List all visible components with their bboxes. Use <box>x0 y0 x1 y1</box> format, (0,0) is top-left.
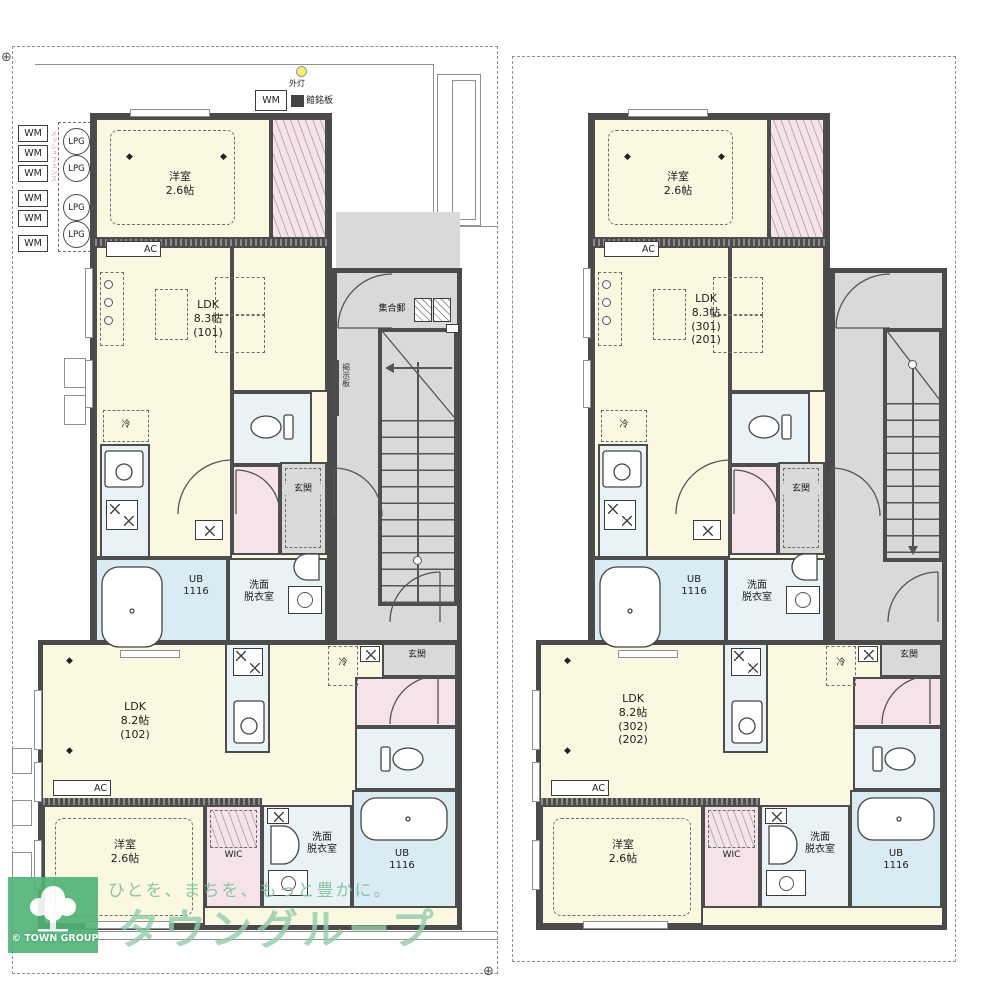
water-meter-2: WM <box>18 145 48 162</box>
stair-rail-right <box>912 366 914 550</box>
washbasin-102-icon <box>268 824 302 866</box>
ub-301-label: UB 1116 <box>668 574 720 598</box>
window <box>34 690 42 750</box>
window <box>583 360 591 408</box>
genkan-301-tile <box>783 468 819 548</box>
closet-101 <box>271 118 327 239</box>
stool <box>104 316 113 325</box>
ldk-301-label: LDK 8.3帖 (301) (201) <box>668 292 744 347</box>
washer-301-icon <box>786 586 820 614</box>
shoe-box-302b <box>765 808 787 824</box>
door-arc-genkan-101 <box>236 470 280 514</box>
meter-box <box>12 748 32 774</box>
stove-102-icon <box>233 648 263 676</box>
window <box>85 360 93 408</box>
genkan-102-label: 玄関 <box>396 650 438 661</box>
ub-101-label: UB 1116 <box>170 574 222 598</box>
window <box>532 762 540 802</box>
ldk-102-label: LDK 8.2帖 (102) <box>100 700 170 741</box>
window <box>130 109 210 117</box>
site-line-bottom-1 <box>30 931 498 932</box>
lpg-cylinder-3: LPG <box>63 194 90 221</box>
washbasin-301-icon <box>786 552 820 582</box>
nameplate-label: 館銘板 <box>306 96 346 107</box>
bedroom-101-label: 洋室 2.6帖 <box>145 170 215 198</box>
site-line-top <box>35 64 433 65</box>
floorplan-canvas: ⊕ ⊕ 外灯 WM 館銘板 WM WM WM WM WM WM メッシュフェンス… <box>0 0 1000 1000</box>
washer-102-icon <box>268 870 308 896</box>
wic-302-label: WIC <box>708 850 755 861</box>
window <box>618 650 678 658</box>
site-line-bottom-2 <box>30 939 498 940</box>
washroom-301-label: 洗面 脱衣室 <box>728 580 786 604</box>
mailbox-small <box>446 324 459 333</box>
window <box>85 921 170 929</box>
stair-newel-right <box>908 360 917 369</box>
window <box>85 268 93 338</box>
window <box>583 268 591 338</box>
bedroom-301-label: 洋室 2.6帖 <box>643 170 713 198</box>
window <box>532 840 540 890</box>
survey-mark-bottom-right: ⊕ <box>483 964 494 979</box>
ceiling-mark: ◆ <box>624 152 631 162</box>
toilet-302-icon <box>870 742 918 774</box>
door-arc-hall-top-left <box>338 274 392 328</box>
water-meter-5: WM <box>18 210 48 227</box>
bulletin-label: 掲示板 <box>341 363 351 387</box>
mailbox-2 <box>433 298 451 322</box>
bathtub-302-icon <box>857 797 935 841</box>
washroom-302-label: 洗面 脱衣室 <box>794 832 846 856</box>
window <box>34 840 42 890</box>
water-meter-4: WM <box>18 190 48 207</box>
water-meter-6: WM <box>18 235 48 252</box>
washroom-101-label: 洗面 脱衣室 <box>230 580 288 604</box>
bedroom-302-futon <box>553 818 691 916</box>
window <box>583 921 668 929</box>
bulletin-wall <box>332 360 339 416</box>
wall <box>541 798 760 805</box>
fridge-101-label: 冷 <box>116 420 136 431</box>
door-arc-corridor-302 <box>882 676 930 724</box>
door-arc-corridor-102 <box>390 676 438 724</box>
stair-down-arrow-right <box>908 546 918 555</box>
site-line-right <box>433 64 434 226</box>
bathtub-301-icon <box>599 566 661 648</box>
bike-rack-inner <box>452 80 476 220</box>
ceiling-mark: ◆ <box>220 152 227 162</box>
ceiling-mark: ◆ <box>718 152 725 162</box>
shoe-box-102 <box>360 646 380 662</box>
ceiling-mark: ◆ <box>66 746 73 756</box>
kitchen-sink-102-icon <box>233 700 265 744</box>
ceiling-mark: ◆ <box>564 746 571 756</box>
wic-302-hatch <box>708 810 755 848</box>
meter-box <box>64 358 86 388</box>
genkan-301-label: 玄関 <box>780 484 822 495</box>
window <box>34 762 42 802</box>
door-arc-hall-top-right <box>836 274 890 328</box>
nameplate-icon <box>291 95 304 107</box>
stool <box>602 316 611 325</box>
genkan-101-label: 玄関 <box>282 484 324 495</box>
mailbox-label: 集合郵 <box>370 304 414 315</box>
meter-box <box>64 395 86 425</box>
stair-newel-left <box>413 556 422 565</box>
door-arc-ldk-101 <box>178 460 232 514</box>
washbasin-101-icon <box>288 552 322 582</box>
ceiling-mark: ◆ <box>66 656 73 666</box>
wall <box>43 798 262 805</box>
outdoor-light-icon <box>296 66 307 77</box>
ub-302-label: UB 1116 <box>872 848 920 872</box>
bedroom-102-label: 洋室 2.6帖 <box>90 838 160 866</box>
door-arc-genkan-301 <box>734 470 778 514</box>
ldk-302-label: LDK 8.2帖 (302) (202) <box>598 692 668 747</box>
stool <box>602 280 611 289</box>
wic-102-hatch <box>210 810 257 848</box>
stool <box>104 280 113 289</box>
lpg-cylinder-1: LPG <box>63 128 90 155</box>
bedroom-102-futon <box>55 818 193 916</box>
bedroom-302-label: 洋室 2.6帖 <box>588 838 658 866</box>
washer-101-icon <box>288 586 322 614</box>
ac-unit-301: AC <box>604 241 659 257</box>
fridge-102-label: 冷 <box>333 658 353 669</box>
lpg-cylinder-4: LPG <box>63 221 90 248</box>
water-meter-top: WM <box>255 90 287 111</box>
shoe-box-102b <box>267 808 289 824</box>
ldk-101-label: LDK 8.3帖 (101) <box>170 298 246 339</box>
approach-left <box>336 212 460 272</box>
door-arc-hall-bottom-left <box>390 572 440 622</box>
genkan-302-label: 玄関 <box>888 650 930 661</box>
door-arc-unit301-side <box>832 468 880 516</box>
stove-302-icon <box>731 648 761 676</box>
survey-mark-top-left: ⊕ <box>1 50 12 65</box>
fridge-302-label: 冷 <box>831 658 851 669</box>
stool <box>104 298 113 307</box>
stove-301-icon <box>604 500 636 530</box>
ac-unit-101: AC <box>106 241 161 257</box>
mailbox-1 <box>414 298 432 322</box>
washroom-102-label: 洗面 脱衣室 <box>296 832 348 856</box>
stair-rail-left <box>417 362 419 602</box>
stove-101-icon <box>106 500 138 530</box>
water-meter-3: WM <box>18 165 48 182</box>
kitchen-sink-101-icon <box>104 450 144 488</box>
ceiling-mark: ◆ <box>126 152 133 162</box>
water-meter-1: WM <box>18 125 48 142</box>
bathtub-101-icon <box>101 566 163 648</box>
ceiling-mark: ◆ <box>564 656 571 666</box>
fridge-301-label: 冷 <box>614 420 634 431</box>
window <box>628 109 708 117</box>
shoe-box-101 <box>195 520 223 540</box>
meter-box <box>12 852 32 878</box>
door-arc-ldk-301 <box>676 460 730 514</box>
window <box>120 650 180 658</box>
bathtub-102-icon <box>360 797 448 841</box>
shoe-box-302 <box>858 646 878 662</box>
ac-unit-102: AC <box>53 780 111 796</box>
ub-102-label: UB 1116 <box>378 848 426 872</box>
outdoor-light-label: 外灯 <box>282 79 312 89</box>
toilet-101-icon <box>248 412 296 444</box>
toilet-102-icon <box>378 742 426 774</box>
window <box>532 690 540 750</box>
lpg-cylinder-2: LPG <box>63 155 90 182</box>
meter-box <box>12 800 32 826</box>
shoe-box-301 <box>693 520 721 540</box>
toilet-301-icon <box>746 412 794 444</box>
stair-up-arrow-left <box>385 363 394 373</box>
stair-arrow-shaft <box>392 367 452 369</box>
washbasin-302-icon <box>766 824 800 866</box>
door-arc-unit101-side <box>334 468 382 516</box>
kitchen-sink-302-icon <box>731 700 763 744</box>
fence-note: メッシュフェンス <box>48 130 58 182</box>
wic-102-label: WIC <box>210 850 257 861</box>
closet-301 <box>769 118 825 239</box>
genkan-101-tile <box>285 468 321 548</box>
washer-302-icon <box>766 870 806 896</box>
kitchen-sink-301-icon <box>602 450 642 488</box>
door-arc-hall-bottom-right <box>888 572 938 622</box>
stool <box>602 298 611 307</box>
ac-unit-302: AC <box>551 780 609 796</box>
